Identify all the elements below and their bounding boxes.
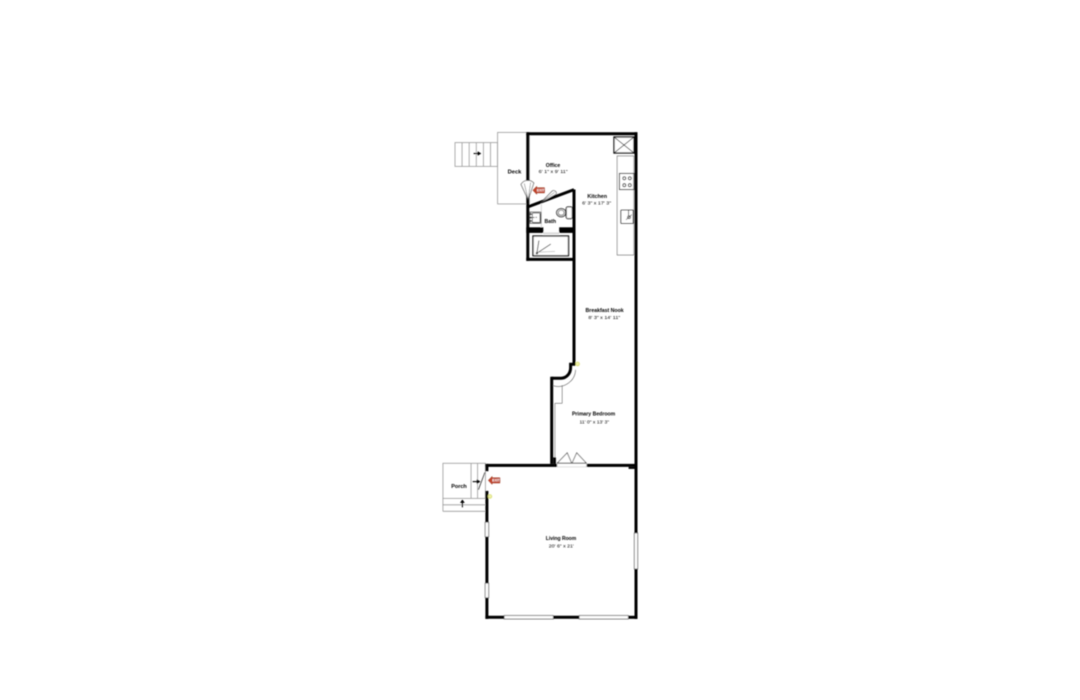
svg-text:Office: Office (546, 163, 561, 169)
svg-text:Bath: Bath (545, 219, 557, 225)
svg-text:EXIT: EXIT (537, 189, 545, 193)
svg-text:8' 3" x 14' 11": 8' 3" x 14' 11" (588, 315, 620, 321)
svg-text:Breakfast Nook: Breakfast Nook (586, 308, 625, 314)
svg-text:11' 0" x 13' 3": 11' 0" x 13' 3" (580, 419, 610, 425)
svg-text:20' 6" x 21': 20' 6" x 21' (549, 544, 574, 550)
svg-text:Kitchen: Kitchen (587, 194, 607, 200)
svg-text:6' 1" x 9' 11": 6' 1" x 9' 11" (539, 169, 568, 175)
svg-text:Living Room: Living Room (546, 536, 577, 542)
svg-text:Primary Bedroom: Primary Bedroom (572, 412, 615, 418)
svg-text:Deck: Deck (508, 170, 523, 176)
svg-text:EXIT: EXIT (492, 479, 500, 483)
svg-text:6' 3" x 17' 3": 6' 3" x 17' 3" (582, 201, 611, 207)
svg-text:Porch: Porch (451, 484, 467, 490)
